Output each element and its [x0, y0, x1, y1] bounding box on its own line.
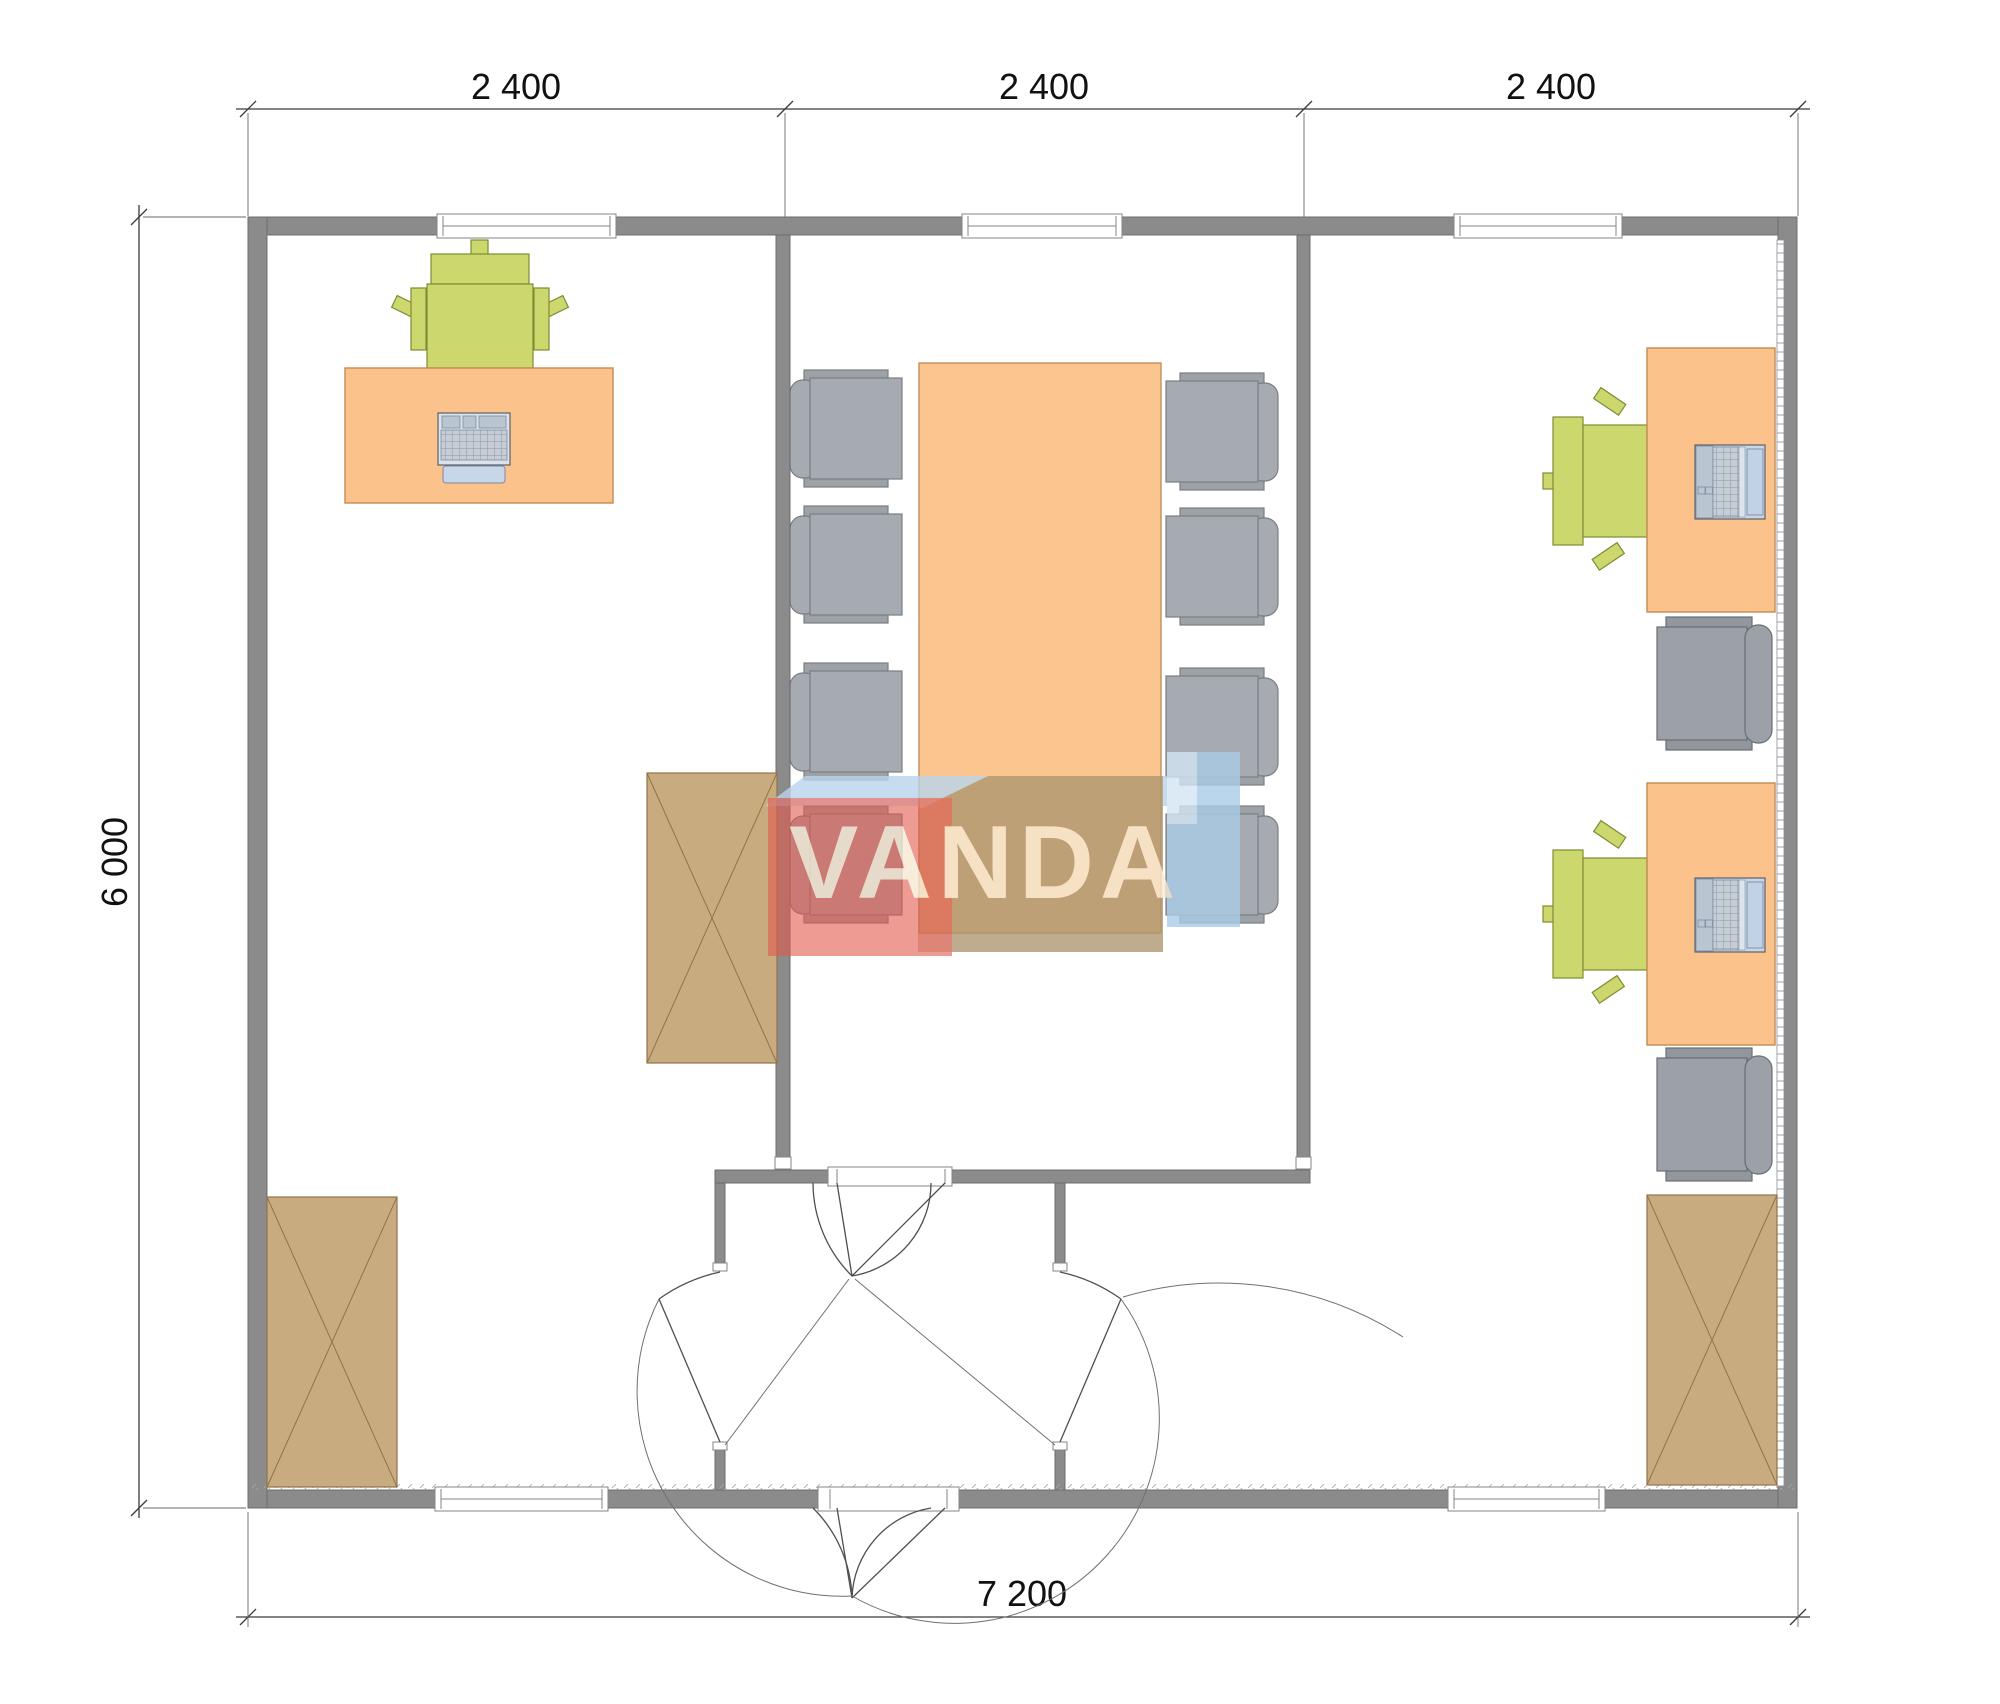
window: [435, 1487, 608, 1511]
laptop-icon: [1695, 445, 1765, 519]
conference-chair: [790, 370, 902, 487]
laptop-icon: [1695, 878, 1765, 952]
right-office-door-opening: [1053, 1263, 1067, 1450]
wardrobe: [647, 773, 777, 1063]
conference-chair: [1166, 508, 1278, 625]
vanda-logo-watermark: VANDA: [765, 752, 1240, 956]
extension-lines: [143, 217, 246, 1508]
room-office-right: [1543, 348, 1777, 1485]
conference-chair: [790, 663, 902, 780]
dimension-top: 2 400 2 400 2 400: [236, 66, 1810, 232]
left-office-door: [637, 1272, 852, 1596]
dimension-label: 2 400: [471, 66, 561, 107]
conference-chair: [790, 506, 902, 623]
radiator-strip: [1777, 240, 1784, 1486]
side-chair: [1657, 1048, 1772, 1181]
wall-interior-1: [776, 235, 790, 1170]
window: [1454, 214, 1622, 238]
exterior-door-opening: [818, 1487, 959, 1511]
conference-chair: [1166, 373, 1278, 490]
dimension-bottom: 7 200: [236, 1512, 1810, 1627]
dimension-label: 7 200: [977, 1573, 1067, 1614]
door-swings: [637, 1183, 1403, 1623]
left-office-door-opening: [713, 1263, 727, 1450]
keyboard-icon: [438, 413, 510, 483]
logo-wordmark: VANDA: [789, 805, 1181, 921]
side-chair: [1657, 617, 1772, 750]
wall-left: [248, 217, 267, 1508]
task-chair: [392, 240, 569, 368]
dimension-left: 6 000: [94, 205, 246, 1518]
dimension-label: 2 400: [999, 66, 1089, 107]
window: [437, 214, 616, 238]
task-chair: [1543, 821, 1647, 1004]
window: [1448, 1487, 1605, 1511]
task-chair: [1543, 388, 1647, 571]
cabinet: [1647, 1195, 1777, 1485]
wall-jamb: [1296, 1157, 1311, 1169]
dimension-label: 2 400: [1506, 66, 1596, 107]
floor-plan-page: 2 400 2 400 2 400 6 000 7 200: [0, 0, 2000, 1704]
floor-plan-canvas: 2 400 2 400 2 400 6 000 7 200: [0, 0, 2000, 1704]
dimension-label: 6 000: [94, 817, 135, 907]
wall-vestibule-top: [715, 1170, 1310, 1183]
wall-interior-2: [1297, 235, 1310, 1170]
right-office-door: [852, 1272, 1403, 1623]
meeting-double-door: [813, 1183, 945, 1276]
room-office-left: [267, 240, 777, 1487]
wall-jamb: [775, 1157, 791, 1169]
cabinet: [267, 1197, 397, 1487]
meeting-door-opening: [828, 1167, 952, 1186]
exterior-double-door: [813, 1508, 945, 1598]
window: [962, 214, 1122, 238]
